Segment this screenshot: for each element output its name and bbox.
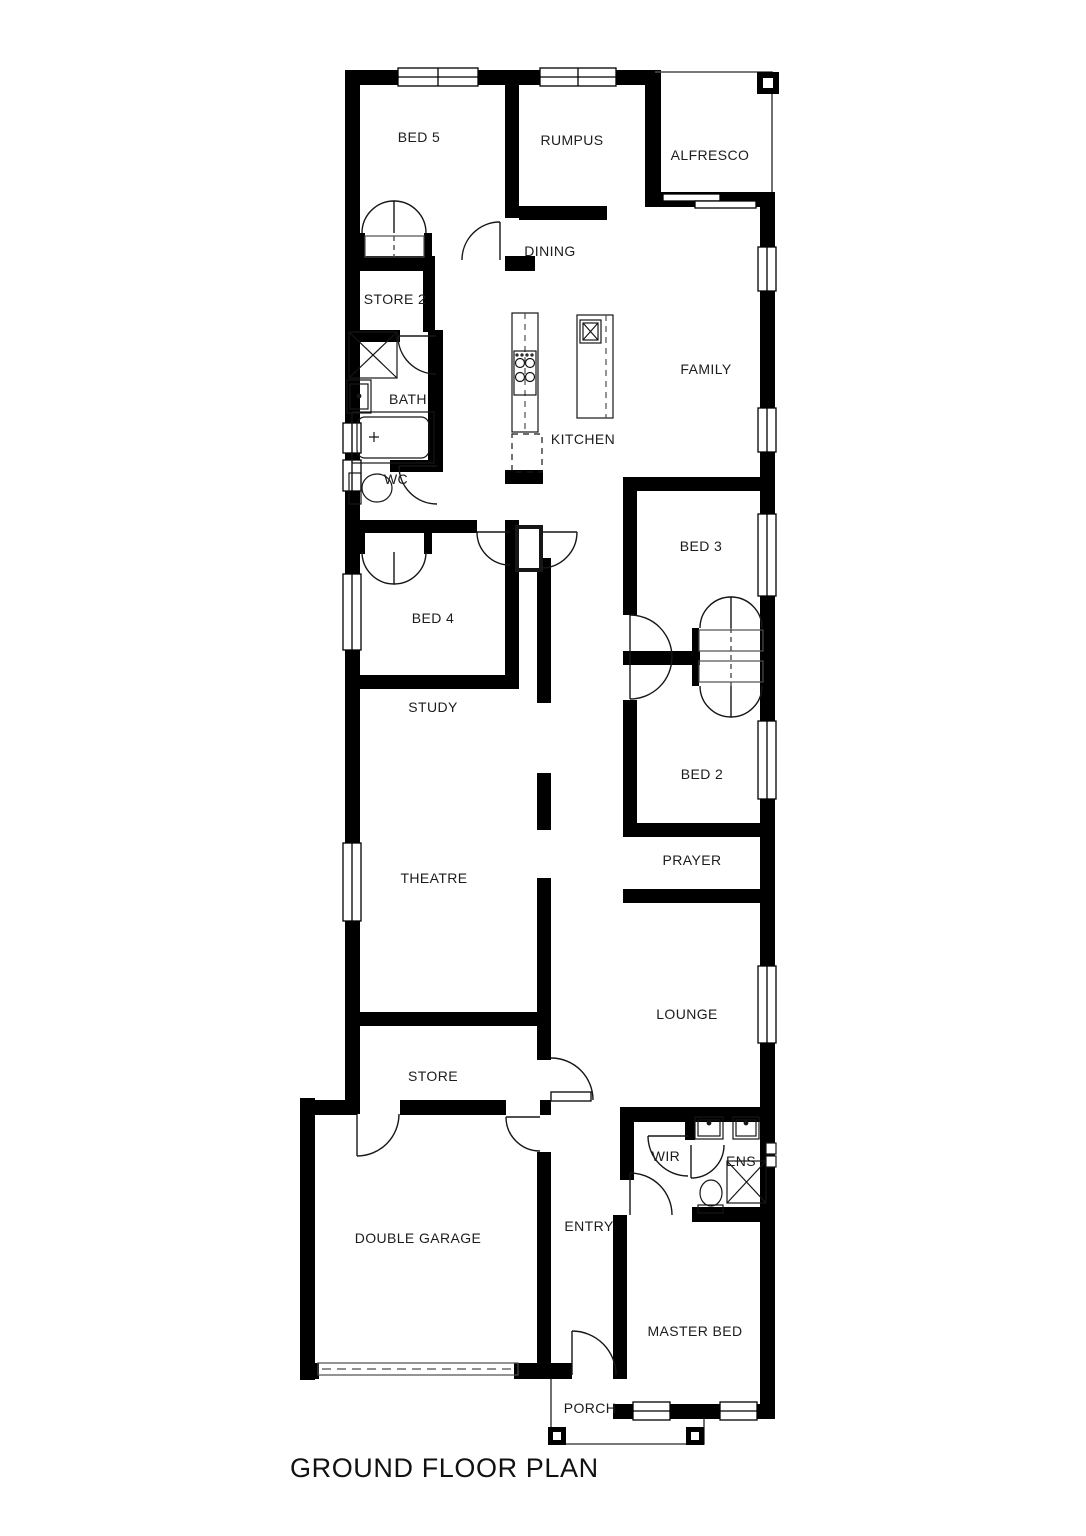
door-ens [691,1145,724,1178]
wall [763,628,770,686]
room-label-ens: ENS [726,1153,756,1169]
wall [760,205,775,1419]
room-label-bed2: BED 2 [681,766,723,782]
window-theatre [343,843,361,921]
room-label-porch: PORCH [564,1400,617,1416]
wall [551,1363,572,1379]
wall [537,1152,551,1379]
window-family-lower [758,408,776,452]
wall [505,470,543,484]
window-master-right [720,1402,757,1420]
room-label-bed5: BED 5 [398,129,440,145]
floor-plan-drawing: BED 5 RUMPUS ALFRESCO DINING STORE 2 BAT… [0,0,1086,1536]
wall [623,477,775,491]
page-title: GROUND FLOOR PLAN [290,1453,599,1483]
door-garage-left [357,1114,399,1156]
porch-post-left [548,1427,566,1445]
alfresco-outline [655,72,772,192]
wall [537,773,551,830]
robe-doors-bed4 [362,552,426,584]
room-label-store2: STORE 2 [364,291,426,307]
wall [357,530,365,554]
room-label-bed4: BED 4 [412,610,454,626]
wall [519,206,607,220]
wall [623,700,637,832]
room-label-store: STORE [408,1068,458,1084]
room-label-alfresco: ALFRESCO [671,147,750,163]
room-labels: BED 5 RUMPUS ALFRESCO DINING STORE 2 BAT… [355,129,756,1416]
window-bed4 [343,574,361,650]
door-front-entry [572,1331,616,1375]
room-label-prayer: PRAYER [663,852,722,868]
window-bed5 [398,68,478,86]
wall [400,1100,506,1115]
wall [537,878,551,1026]
alfresco-post [757,72,779,94]
window-lounge [758,966,776,1043]
wall [357,233,365,260]
pantry-dashed [512,434,542,472]
room-label-family: FAMILY [680,361,731,377]
window-bed2 [758,721,776,799]
wall [537,558,551,703]
room-label-study: STUDY [408,699,458,715]
door-master-bed [630,1173,672,1215]
wall [623,889,775,903]
wall [613,1215,627,1379]
wall [540,1100,551,1115]
wall [623,823,775,837]
wall [300,1363,319,1379]
window-master-left [633,1402,670,1420]
wall [345,1012,551,1026]
wall [623,651,700,665]
robe-shelves [699,628,763,686]
room-label-wir: WIR [652,1148,680,1164]
room-label-wc: WC [384,471,408,487]
window-rumpus [540,68,616,86]
wall [505,70,519,218]
porch-post-right [686,1427,704,1445]
room-label-bed3: BED 3 [680,538,722,554]
garage-panel-door [318,1363,518,1375]
wall [537,1026,551,1060]
doors [357,201,763,1375]
room-label-lounge: LOUNGE [656,1006,718,1022]
wall [424,530,432,554]
posts [548,72,779,1445]
island-bench [577,315,613,418]
wall [300,1098,315,1380]
robe-doors-bed5 [362,201,426,257]
window-bed3 [758,514,776,596]
wall [645,70,661,192]
walls [300,70,775,1419]
wall [345,675,517,689]
room-label-double-garage: DOUBLE GARAGE [355,1230,482,1246]
wall [623,477,637,615]
wall [692,628,699,686]
wall [300,1100,357,1115]
bathtub [352,412,434,463]
room-label-entry: ENTRY [564,1218,613,1234]
wall [424,233,432,260]
ens-basin-left [695,1117,723,1139]
ens-basin-right [733,1117,759,1139]
kitchen-counter [512,313,538,432]
door-garage-right [506,1117,540,1151]
room-label-rumpus: RUMPUS [540,132,603,148]
wall [620,1107,634,1180]
robe-doors-bed3 [700,597,762,628]
window-family-upper [758,247,776,291]
floor-plan-page: BED 5 RUMPUS ALFRESCO DINING STORE 2 BAT… [0,0,1086,1536]
room-label-dining: DINING [524,243,575,259]
outdoor-outlines [551,72,772,1444]
linen-cupboard [517,527,541,570]
wall [692,1207,775,1222]
room-label-kitchen: KITCHEN [551,431,615,447]
door-store [551,1058,593,1101]
wall [428,330,443,462]
room-label-bath: BATH [389,391,427,407]
room-label-master-bed: MASTER BED [647,1323,742,1339]
door-bed5 [462,222,500,260]
room-label-theatre: THEATRE [400,870,467,886]
robe-doors-bed2 [700,686,762,717]
window-wc [343,460,361,491]
